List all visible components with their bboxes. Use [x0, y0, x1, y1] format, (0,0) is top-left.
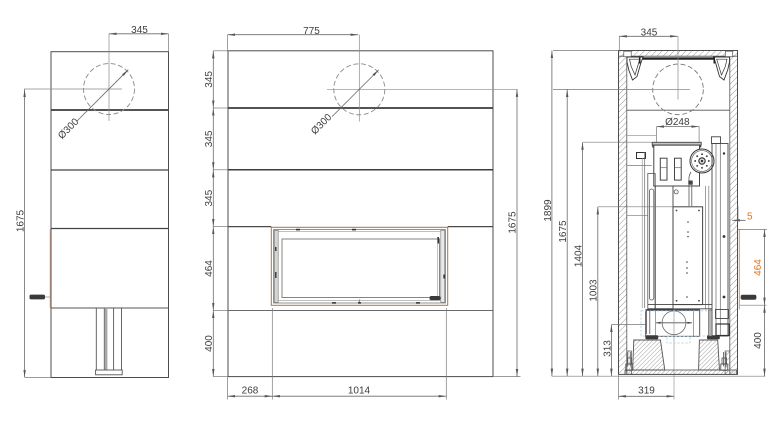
svg-text:1003: 1003 — [589, 279, 600, 302]
svg-text:1675: 1675 — [15, 209, 26, 232]
svg-text:1404: 1404 — [573, 244, 584, 267]
svg-text:1675: 1675 — [558, 220, 569, 243]
svg-text:464: 464 — [753, 259, 764, 276]
svg-text:268: 268 — [242, 385, 259, 396]
svg-text:345: 345 — [204, 130, 215, 147]
svg-text:775: 775 — [303, 26, 320, 37]
svg-text:345: 345 — [641, 27, 658, 38]
svg-text:345: 345 — [131, 25, 148, 36]
svg-text:313: 313 — [602, 340, 613, 357]
svg-text:Ø300: Ø300 — [309, 112, 334, 137]
svg-text:345: 345 — [204, 71, 215, 88]
svg-text:400: 400 — [204, 335, 215, 352]
svg-text:464: 464 — [204, 260, 215, 277]
svg-text:319: 319 — [638, 386, 655, 397]
svg-text:345: 345 — [204, 189, 215, 206]
svg-text:400: 400 — [753, 332, 764, 349]
svg-text:1014: 1014 — [348, 385, 371, 396]
svg-text:1899: 1899 — [543, 199, 554, 222]
svg-text:5: 5 — [747, 211, 753, 222]
svg-text:1675: 1675 — [508, 211, 519, 234]
